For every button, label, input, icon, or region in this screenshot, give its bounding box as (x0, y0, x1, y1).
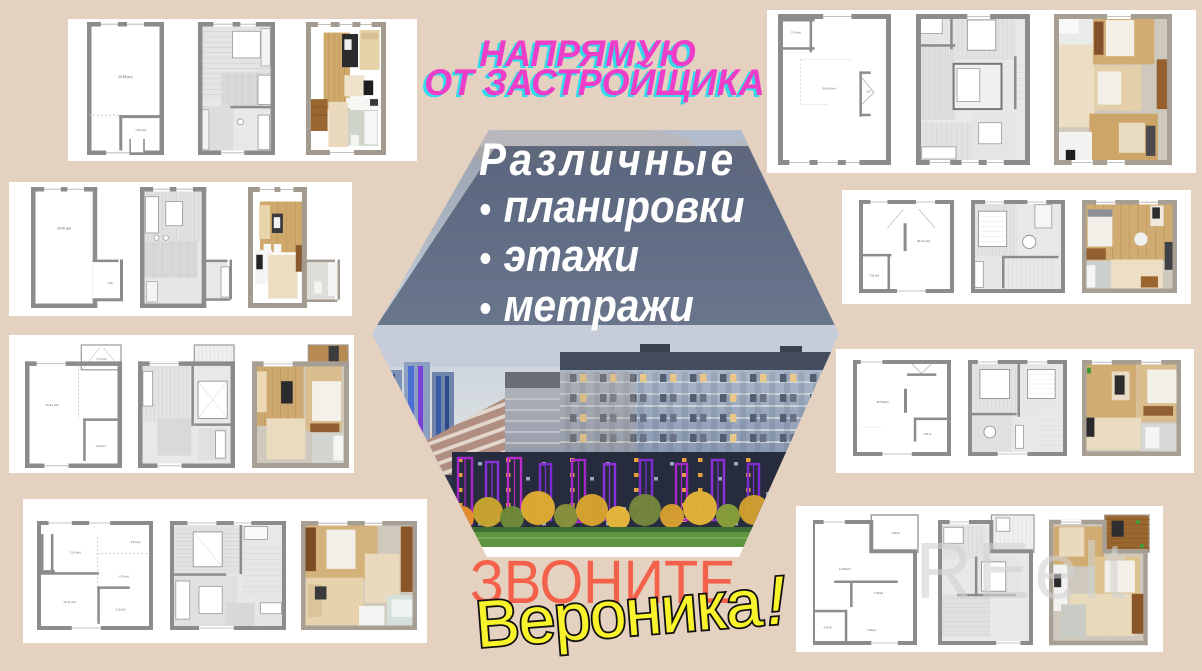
svg-text:!: ! (764, 562, 789, 639)
svg-text:Вероника: Вероника (473, 565, 766, 661)
